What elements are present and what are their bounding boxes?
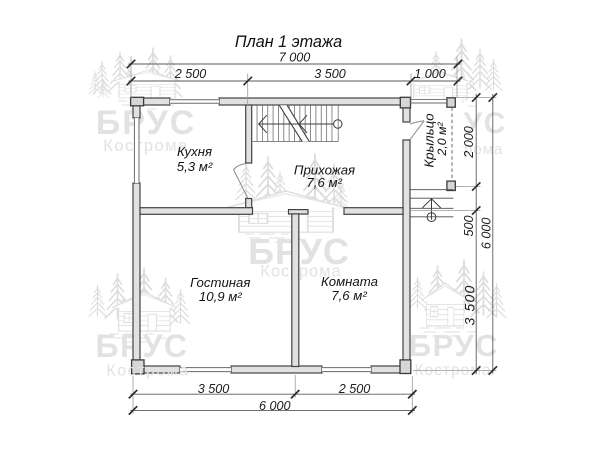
svg-text:5,3 м²: 5,3 м² [177,159,213,174]
svg-text:6 000: 6 000 [480,218,494,250]
svg-text:Кострома: Кострома [103,137,188,155]
svg-text:3 500: 3 500 [314,67,346,81]
svg-text:3 500: 3 500 [461,284,477,325]
svg-text:БРУС: БРУС [409,328,499,363]
svg-text:2 000: 2 000 [462,126,476,159]
svg-text:План 1 этажа: План 1 этажа [235,33,342,51]
svg-text:3 500: 3 500 [198,382,230,396]
svg-text:7,6 м²: 7,6 м² [331,288,367,303]
svg-text:Кострома: Кострома [106,363,189,380]
svg-text:Кухня: Кухня [177,144,212,159]
svg-text:1 000: 1 000 [414,67,446,81]
svg-text:7,6 м²: 7,6 м² [306,175,342,190]
svg-text:500: 500 [462,215,476,236]
svg-text:2,0 м²: 2,0 м² [435,121,449,156]
svg-text:2 500: 2 500 [338,382,371,396]
svg-text:2 500: 2 500 [174,67,207,81]
svg-text:Гостиная: Гостиная [190,275,250,290]
svg-text:7 000: 7 000 [279,51,311,65]
svg-text:БРУС: БРУС [96,328,189,364]
svg-text:10,9 м²: 10,9 м² [199,289,242,304]
svg-text:Комната: Комната [321,274,378,289]
svg-text:6 000: 6 000 [259,399,291,413]
